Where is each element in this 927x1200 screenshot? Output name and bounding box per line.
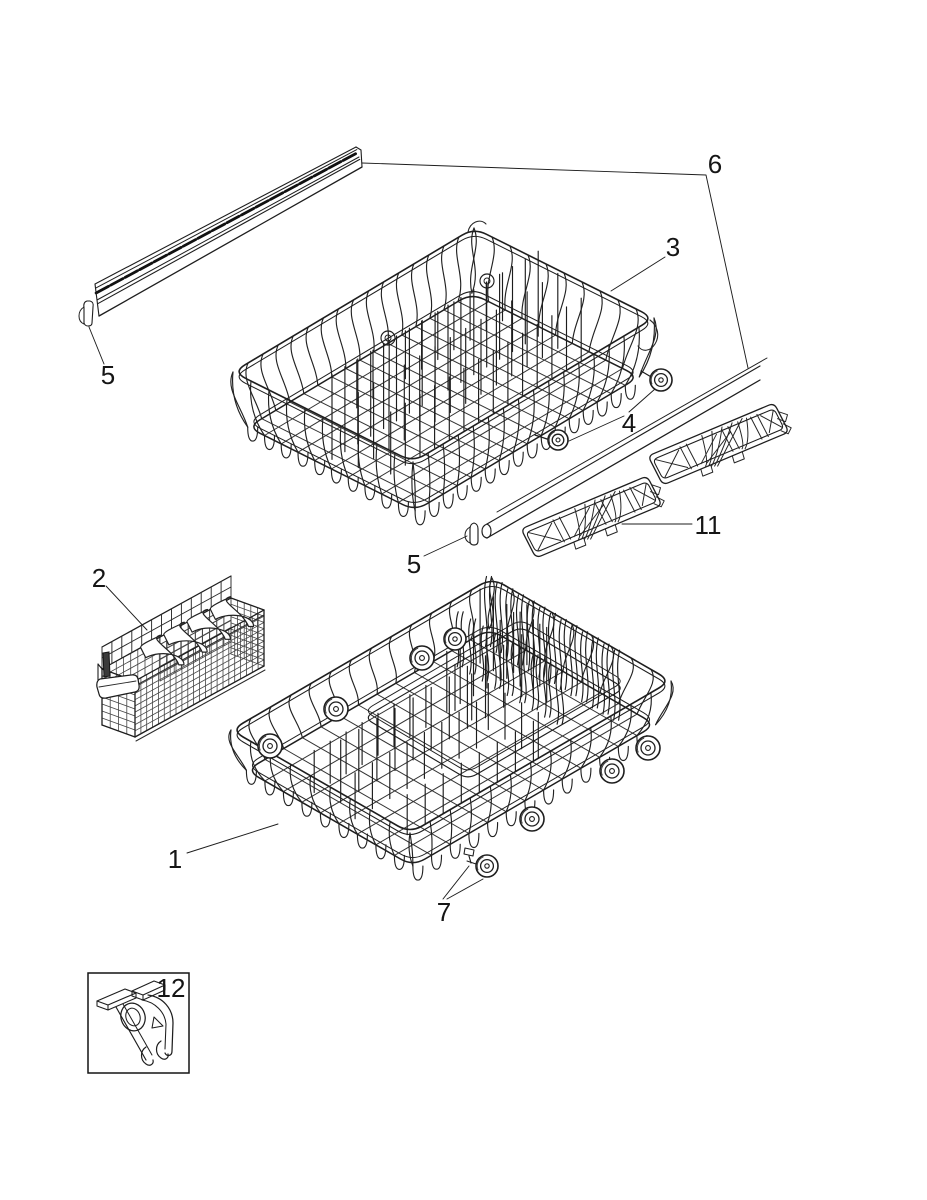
svg-text:7: 7 <box>437 897 451 927</box>
svg-text:3: 3 <box>666 232 680 262</box>
svg-text:11: 11 <box>695 510 722 540</box>
svg-text:2: 2 <box>92 563 106 593</box>
svg-text:6: 6 <box>708 149 722 179</box>
svg-text:12: 12 <box>157 973 186 1003</box>
svg-text:5: 5 <box>101 360 115 390</box>
svg-text:1: 1 <box>168 844 182 874</box>
svg-text:5: 5 <box>407 549 421 579</box>
